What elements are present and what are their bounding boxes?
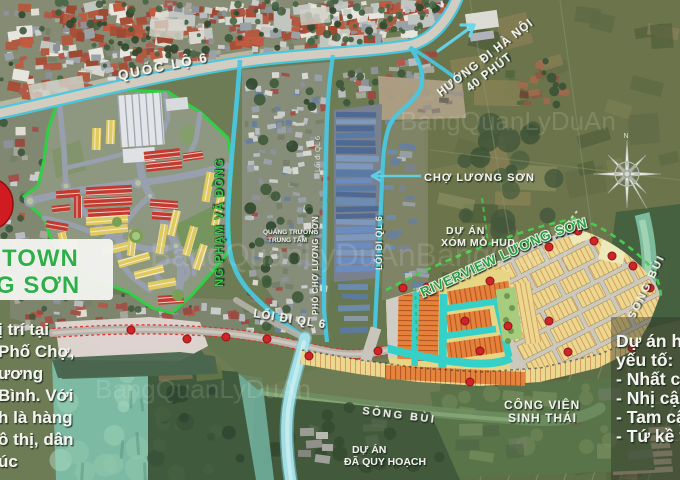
svg-text:NG PHẠM VĂ ĐỒNG: NG PHẠM VĂ ĐỒNG: [213, 158, 226, 287]
svg-text:- Tứ kề vi: - Tứ kề vi: [616, 426, 680, 446]
svg-text:LỐI ĐI QL 6: LỐI ĐI QL 6: [373, 216, 384, 270]
svg-text:úc: úc: [0, 452, 18, 471]
svg-text:TRUNG TÂM: TRUNG TÂM: [268, 235, 307, 244]
svg-text:ị trí tại: ị trí tại: [0, 320, 49, 339]
svg-text:ương: ương: [0, 364, 43, 383]
svg-text:G SƠN: G SƠN: [0, 272, 80, 299]
svg-text:BangQuanLyDuAn: BangQuanLyDuAn: [95, 374, 311, 404]
svg-text:BangQuanLyDuAn: BangQuanLyDuAn: [400, 106, 616, 136]
svg-text:Phố Chợ,: Phố Chợ,: [0, 342, 74, 361]
svg-text:DỰ ÁN: DỰ ÁN: [352, 443, 386, 456]
svg-text:TOWN: TOWN: [2, 245, 79, 272]
svg-text:Bình. Với: Bình. Với: [0, 386, 73, 405]
svg-text:- Nhất cậ: - Nhất cậ: [616, 369, 680, 389]
svg-text:DỰ ÁN: DỰ ÁN: [446, 224, 485, 237]
svg-text:N: N: [623, 133, 628, 140]
svg-text:CHỢ LƯƠNG SƠN: CHỢ LƯƠNG SƠN: [424, 172, 535, 184]
svg-text:- Tam cậ: - Tam cậ: [616, 407, 680, 427]
svg-text:h là hàng: h là hàng: [0, 408, 73, 427]
svg-text:yếu tố:: yếu tố:: [616, 350, 673, 370]
svg-text:CÔNG VIÊN: CÔNG VIÊN: [504, 397, 580, 412]
svg-text:SINH THÁI: SINH THÁI: [508, 410, 577, 425]
svg-text:Lối đi QL 6: Lối đi QL 6: [313, 136, 322, 172]
svg-text:QUẢNG TRƯỜNG: QUẢNG TRƯỜNG: [263, 227, 318, 236]
svg-text:ĐÃ QUY HOẠCH: ĐÃ QUY HOẠCH: [344, 455, 426, 468]
svg-text:- Nhị cận: - Nhị cận: [616, 388, 680, 408]
svg-text:Dự án hội: Dự án hội: [616, 331, 680, 351]
svg-text:ô thị, dân: ô thị, dân: [0, 430, 74, 449]
